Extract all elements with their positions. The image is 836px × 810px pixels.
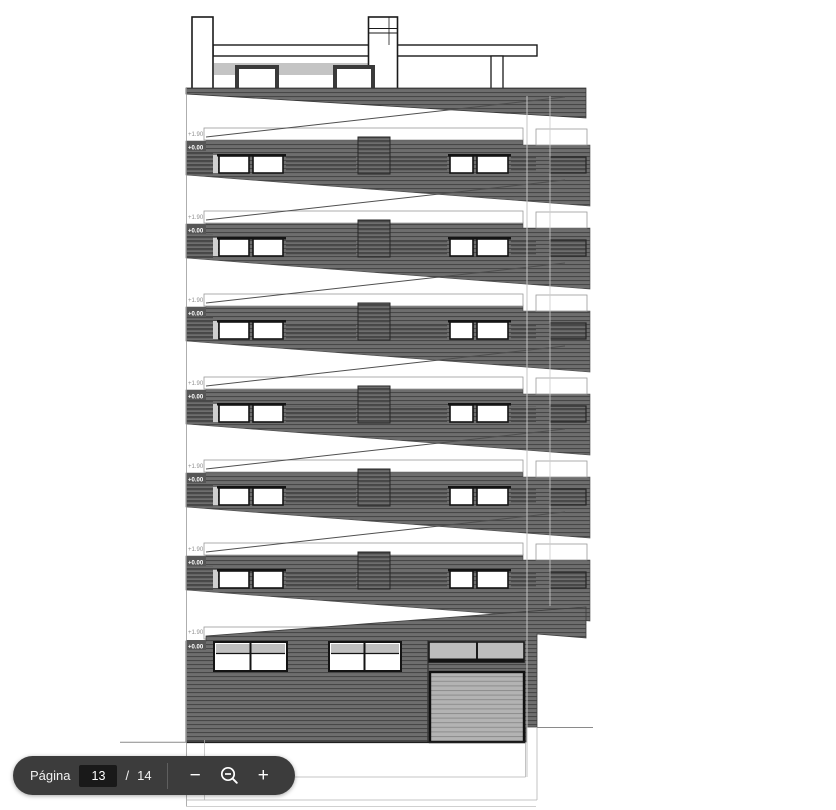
louver-accent — [511, 157, 536, 173]
ground-window-left — [214, 642, 287, 671]
window — [477, 488, 508, 505]
window — [477, 405, 508, 422]
ground-floor: +1.90 +0.00 — [120, 607, 586, 742]
louver-accent — [511, 406, 536, 422]
louver-accent — [186, 234, 213, 258]
louver-accent — [286, 489, 356, 505]
window — [219, 322, 249, 339]
core-panel-louvers — [358, 469, 390, 506]
louver-accent — [186, 151, 213, 175]
wall-reveal — [213, 238, 218, 256]
louver-accent-right — [550, 406, 586, 422]
louver-accent-right — [550, 240, 586, 256]
window — [450, 405, 473, 422]
window — [253, 156, 283, 173]
window — [253, 571, 283, 588]
level-zero-label: +0.00 — [188, 561, 204, 567]
zoom-in-button[interactable]: + — [249, 766, 278, 785]
louver-accent — [511, 572, 536, 588]
level-upper-label: +1.90 — [188, 464, 204, 470]
louver-accent — [286, 240, 356, 256]
wall-reveal — [213, 155, 218, 173]
louver-accent — [390, 323, 447, 339]
louver-accent-right — [550, 489, 586, 505]
window — [253, 322, 283, 339]
floors-layer: +1.90+0.00+1.90+0.00+1.90+0.00+1.90+0.00… — [186, 97, 590, 621]
roof-tower-left — [192, 17, 213, 89]
window — [219, 571, 249, 588]
page-number-input[interactable]: 13 — [79, 765, 117, 787]
core-panel-louvers — [358, 220, 390, 257]
level-zero-label: +0.00 — [188, 146, 204, 152]
window — [219, 156, 249, 173]
level-zero-label: +0.00 — [188, 645, 204, 651]
roof-structure — [186, 17, 586, 118]
window — [477, 239, 508, 256]
level-upper-label: +1.90 — [188, 630, 204, 636]
parapet-strip-right — [536, 295, 587, 311]
pdf-page: +1.90+0.00+1.90+0.00+1.90+0.00+1.90+0.00… — [0, 0, 836, 810]
level-zero-label: +0.00 — [188, 478, 204, 484]
louver-accent — [511, 323, 536, 339]
parapet-strip-right — [536, 461, 587, 477]
page-label: Página — [30, 768, 70, 783]
window — [477, 322, 508, 339]
louver-accent — [390, 406, 447, 422]
louver-accent-right — [550, 323, 586, 339]
louver-accent — [286, 572, 356, 588]
louver-accent — [286, 406, 356, 422]
ground-window-right — [329, 642, 401, 671]
garage-door — [430, 672, 524, 742]
wall-reveal — [213, 487, 218, 505]
parapet-strip-right — [536, 129, 587, 145]
window — [450, 322, 473, 339]
level-upper-label: +1.90 — [188, 298, 204, 304]
canopy-column — [491, 56, 503, 89]
parapet-strip-right — [536, 212, 587, 228]
level-upper-label: +1.90 — [188, 381, 204, 387]
pdf-toolbar: Página 13 / 14 − + — [13, 756, 295, 795]
louver-accent — [186, 566, 213, 590]
louver-accent-right — [550, 157, 586, 173]
window — [219, 488, 249, 505]
window — [253, 239, 283, 256]
window — [450, 156, 473, 173]
wall-reveal — [213, 321, 218, 339]
louver-accent — [286, 157, 356, 173]
louver-accent — [186, 483, 213, 507]
window — [477, 571, 508, 588]
louver-accent-right — [550, 572, 586, 588]
louver-accent — [390, 489, 447, 505]
core-panel-louvers — [358, 386, 390, 423]
louver-accent — [390, 157, 447, 173]
zoom-out-button[interactable]: − — [181, 766, 210, 785]
core-panel-louvers — [358, 137, 390, 174]
window — [253, 405, 283, 422]
louver-accent — [186, 400, 213, 424]
core-panel-louvers — [358, 303, 390, 340]
parapet-strip-right — [536, 378, 587, 394]
garage-transom-window — [429, 642, 524, 662]
level-zero-label: +0.00 — [188, 229, 204, 235]
page-separator: / — [125, 768, 129, 783]
core-panel-louvers — [358, 552, 390, 589]
window — [219, 405, 249, 422]
magnifier-minus-icon[interactable] — [210, 766, 249, 785]
level-zero-label: +0.00 — [188, 395, 204, 401]
wall-reveal — [213, 404, 218, 422]
louver-accent — [511, 240, 536, 256]
roof-edge-band — [186, 88, 586, 118]
window — [219, 239, 249, 256]
level-zero-label: +0.00 — [188, 312, 204, 318]
toolbar-divider — [167, 763, 168, 789]
window — [450, 239, 473, 256]
elevation-drawing: +1.90+0.00+1.90+0.00+1.90+0.00+1.90+0.00… — [0, 0, 836, 810]
louver-accent — [390, 240, 447, 256]
level-upper-label: +1.90 — [188, 215, 204, 221]
wall-reveal — [213, 570, 218, 588]
window — [253, 488, 283, 505]
level-upper-label: +1.90 — [188, 132, 204, 138]
window — [450, 571, 473, 588]
louver-accent — [390, 572, 447, 588]
louver-accent — [186, 317, 213, 341]
louver-accent — [511, 489, 536, 505]
louver-accent — [286, 323, 356, 339]
total-pages: 14 — [137, 768, 151, 783]
parapet-strip-right — [536, 544, 587, 560]
window — [477, 156, 508, 173]
window — [450, 488, 473, 505]
level-upper-label: +1.90 — [188, 547, 204, 553]
